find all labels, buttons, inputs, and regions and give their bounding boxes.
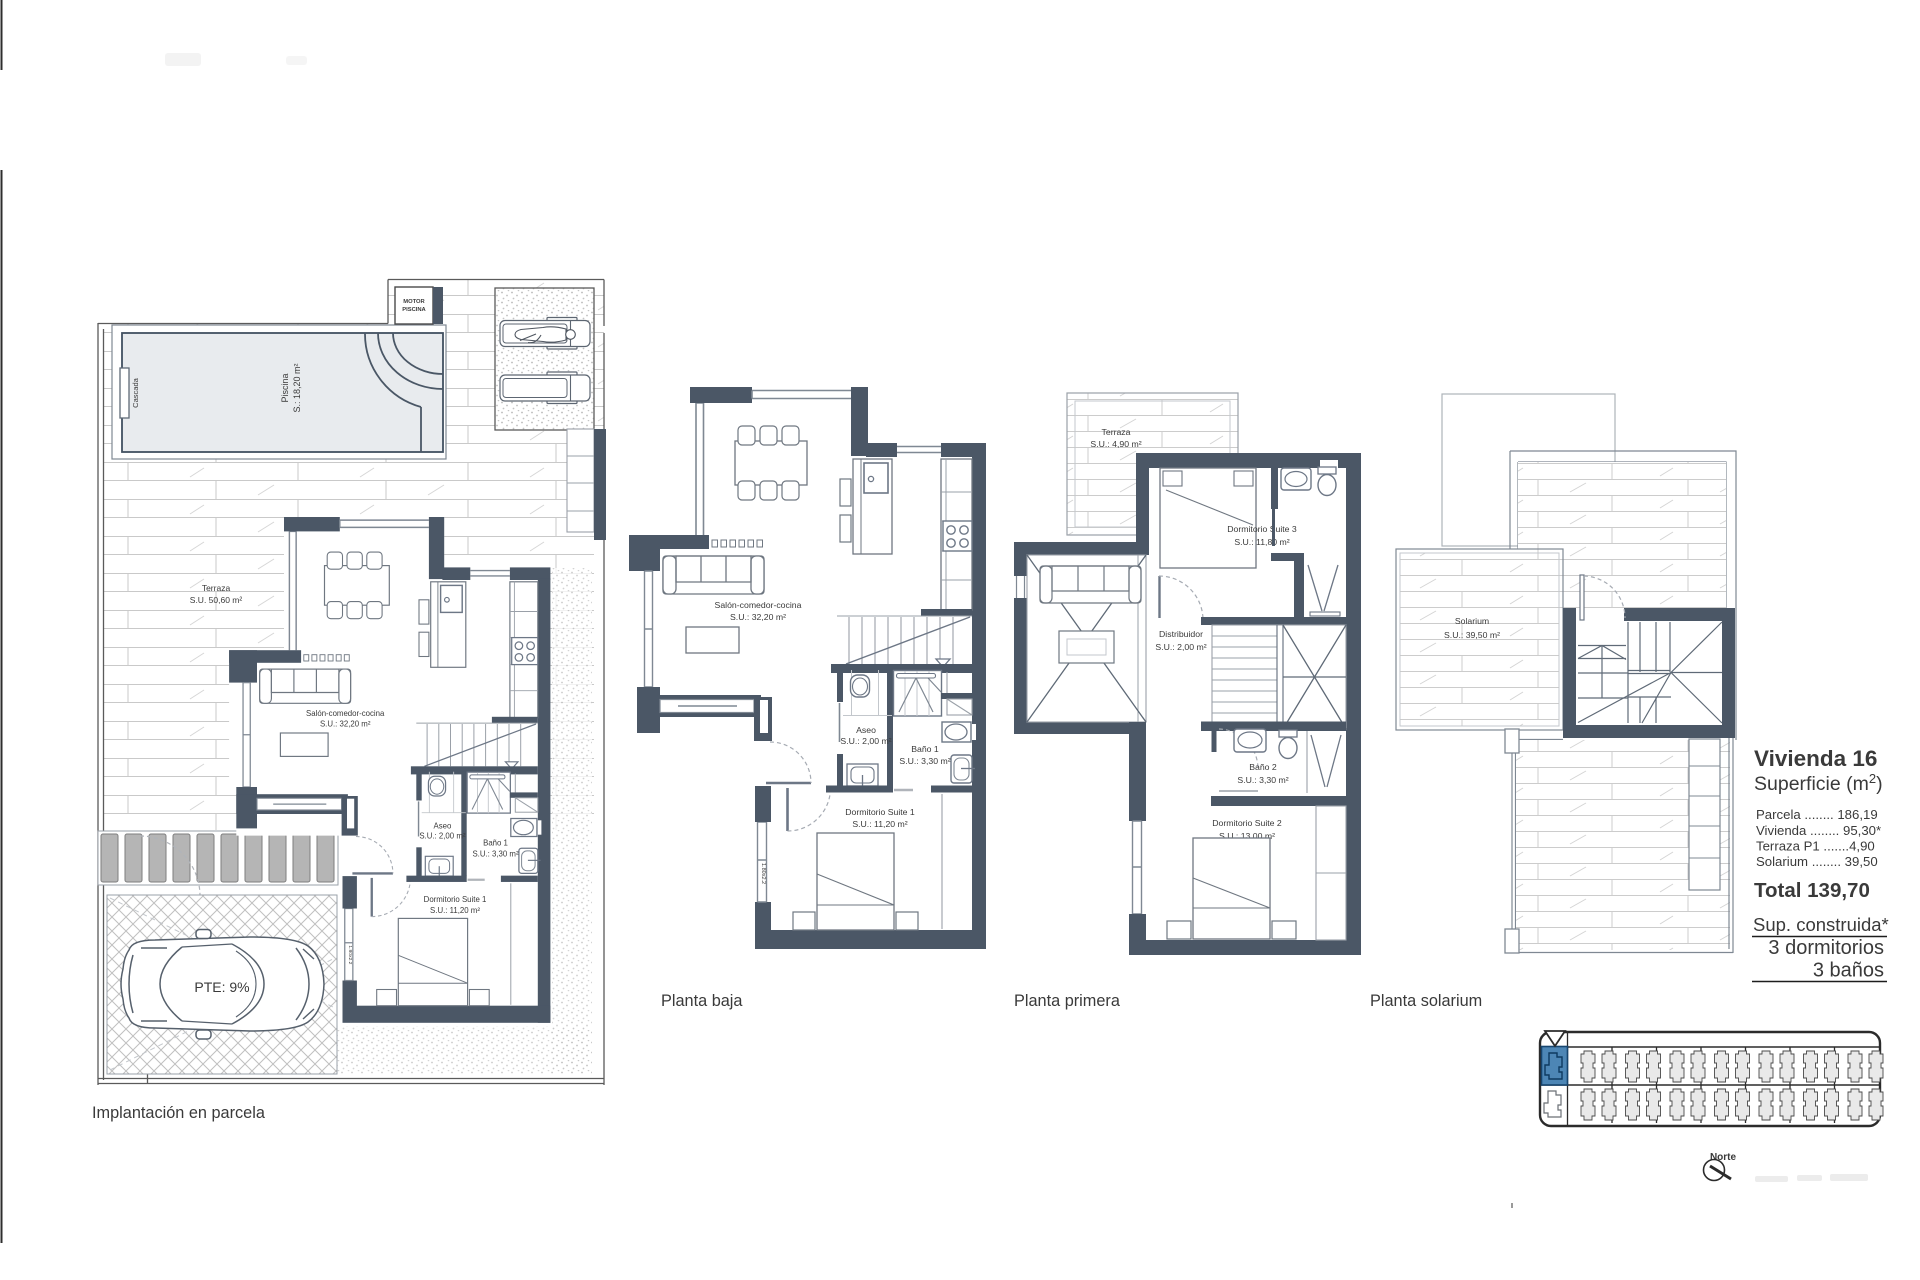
svg-text:Superficie (m2): Superficie (m2) xyxy=(1754,771,1883,795)
svg-text:Aseo: Aseo xyxy=(856,725,876,735)
svg-text:3 baños: 3 baños xyxy=(1813,960,1884,982)
svg-text:MOTOR: MOTOR xyxy=(403,299,425,305)
svg-text:Vivienda ........ 95,30*: Vivienda ........ 95,30* xyxy=(1756,823,1881,838)
svg-text:Planta primera: Planta primera xyxy=(1014,992,1121,1010)
svg-text:Parcela ........ 186,19: Parcela ........ 186,19 xyxy=(1756,807,1878,822)
svg-text:Terraza: Terraza xyxy=(1102,427,1131,437)
svg-text:Vivienda 16: Vivienda 16 xyxy=(1754,746,1877,771)
svg-text:Piscina: Piscina xyxy=(280,373,290,402)
svg-text:S.U.: 39,50 m²: S.U.: 39,50 m² xyxy=(1444,630,1500,640)
svg-text:PTE: 9%: PTE: 9% xyxy=(194,979,249,995)
svg-text:Terraza P1 .......4,90: Terraza P1 .......4,90 xyxy=(1756,839,1875,854)
svg-text:S.U.: 3,30 m²: S.U.: 3,30 m² xyxy=(899,756,950,766)
svg-text:Salón-comedor-cocina: Salón-comedor-cocina xyxy=(715,600,802,610)
svg-text:3 dormitorios: 3 dormitorios xyxy=(1768,937,1884,959)
svg-text:S.: 18,20 m²: S.: 18,20 m² xyxy=(292,363,302,412)
svg-text:PISCINA: PISCINA xyxy=(402,307,426,313)
svg-text:Solarium ........ 39,50: Solarium ........ 39,50 xyxy=(1756,854,1878,869)
svg-text:Planta baja: Planta baja xyxy=(661,992,743,1010)
svg-text:Implantación en parcela: Implantación en parcela xyxy=(92,1104,266,1122)
svg-text:Dormitorio Suite 2: Dormitorio Suite 2 xyxy=(1212,818,1282,828)
svg-text:Baño 1: Baño 1 xyxy=(911,744,939,754)
svg-text:S.U.: 32,20 m²: S.U.: 32,20 m² xyxy=(730,612,786,622)
svg-text:S.U.: 11,20 m²: S.U.: 11,20 m² xyxy=(852,819,907,829)
svg-text:Terraza: Terraza xyxy=(202,583,231,593)
svg-text:S.U.: 2,00 m²: S.U.: 2,00 m² xyxy=(1155,642,1206,652)
svg-text:S.U.: 3,30 m²: S.U.: 3,30 m² xyxy=(1237,775,1288,785)
svg-text:1.80x2.2: 1.80x2.2 xyxy=(760,863,766,884)
svg-text:S.U. 50,60 m²: S.U. 50,60 m² xyxy=(190,595,243,605)
svg-text:S.U.: 11,80 m²: S.U.: 11,80 m² xyxy=(1234,537,1289,547)
svg-text:S.U.: 4,90 m²: S.U.: 4,90 m² xyxy=(1090,439,1141,449)
svg-text:Total 139,70: Total 139,70 xyxy=(1754,879,1870,902)
svg-text:Cascada: Cascada xyxy=(131,377,140,407)
svg-text:Sup. construida*: Sup. construida* xyxy=(1753,914,1889,935)
svg-text:Dormitorio Suite 1: Dormitorio Suite 1 xyxy=(845,807,915,817)
svg-text:S.U.: 2,00 m²: S.U.: 2,00 m² xyxy=(840,736,891,746)
svg-text:Dormitorio Suite 3: Dormitorio Suite 3 xyxy=(1227,524,1297,534)
svg-text:Distribuidor: Distribuidor xyxy=(1159,629,1203,639)
svg-text:Planta solarium: Planta solarium xyxy=(1370,992,1482,1010)
svg-text:Solarium: Solarium xyxy=(1455,616,1489,626)
svg-text:Baño 2: Baño 2 xyxy=(1249,762,1277,772)
